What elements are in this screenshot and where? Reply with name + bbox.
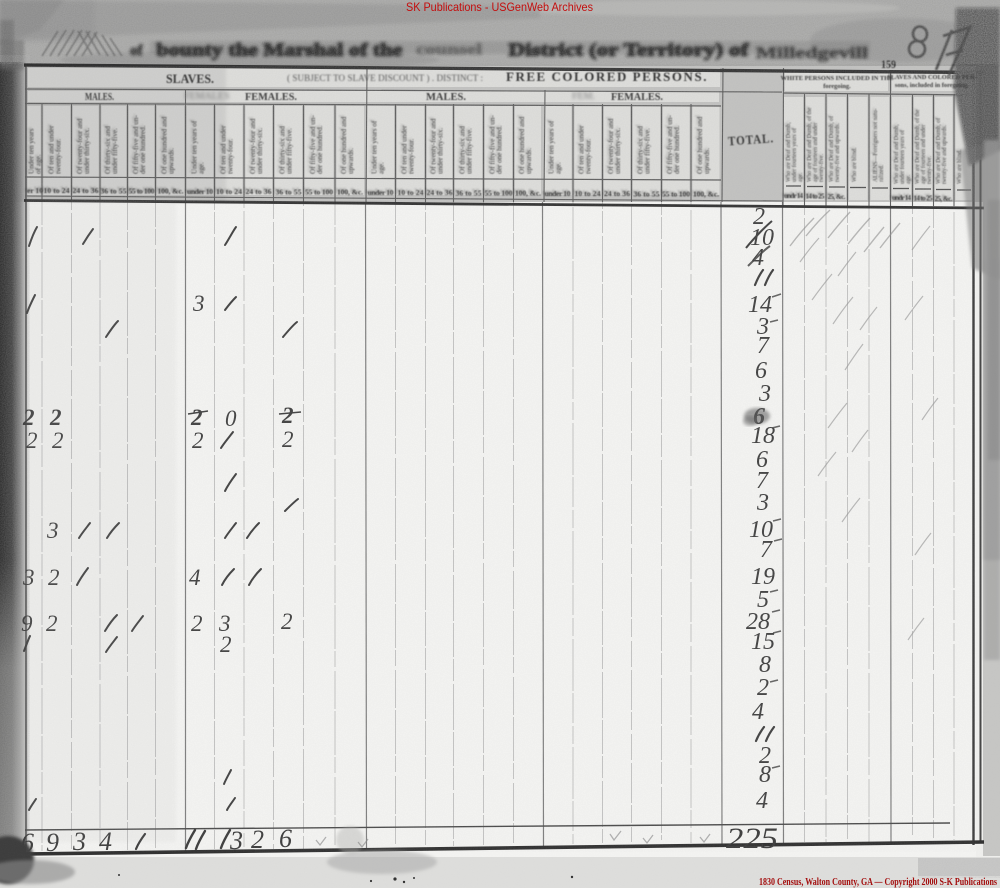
svg-text:SK Publications - USGenWeb Arc: SK Publications - USGenWeb Archives — [406, 1, 593, 14]
svg-text:1830 Census, Walton County, GA: 1830 Census, Walton County, GA — Copyrig… — [759, 877, 997, 888]
